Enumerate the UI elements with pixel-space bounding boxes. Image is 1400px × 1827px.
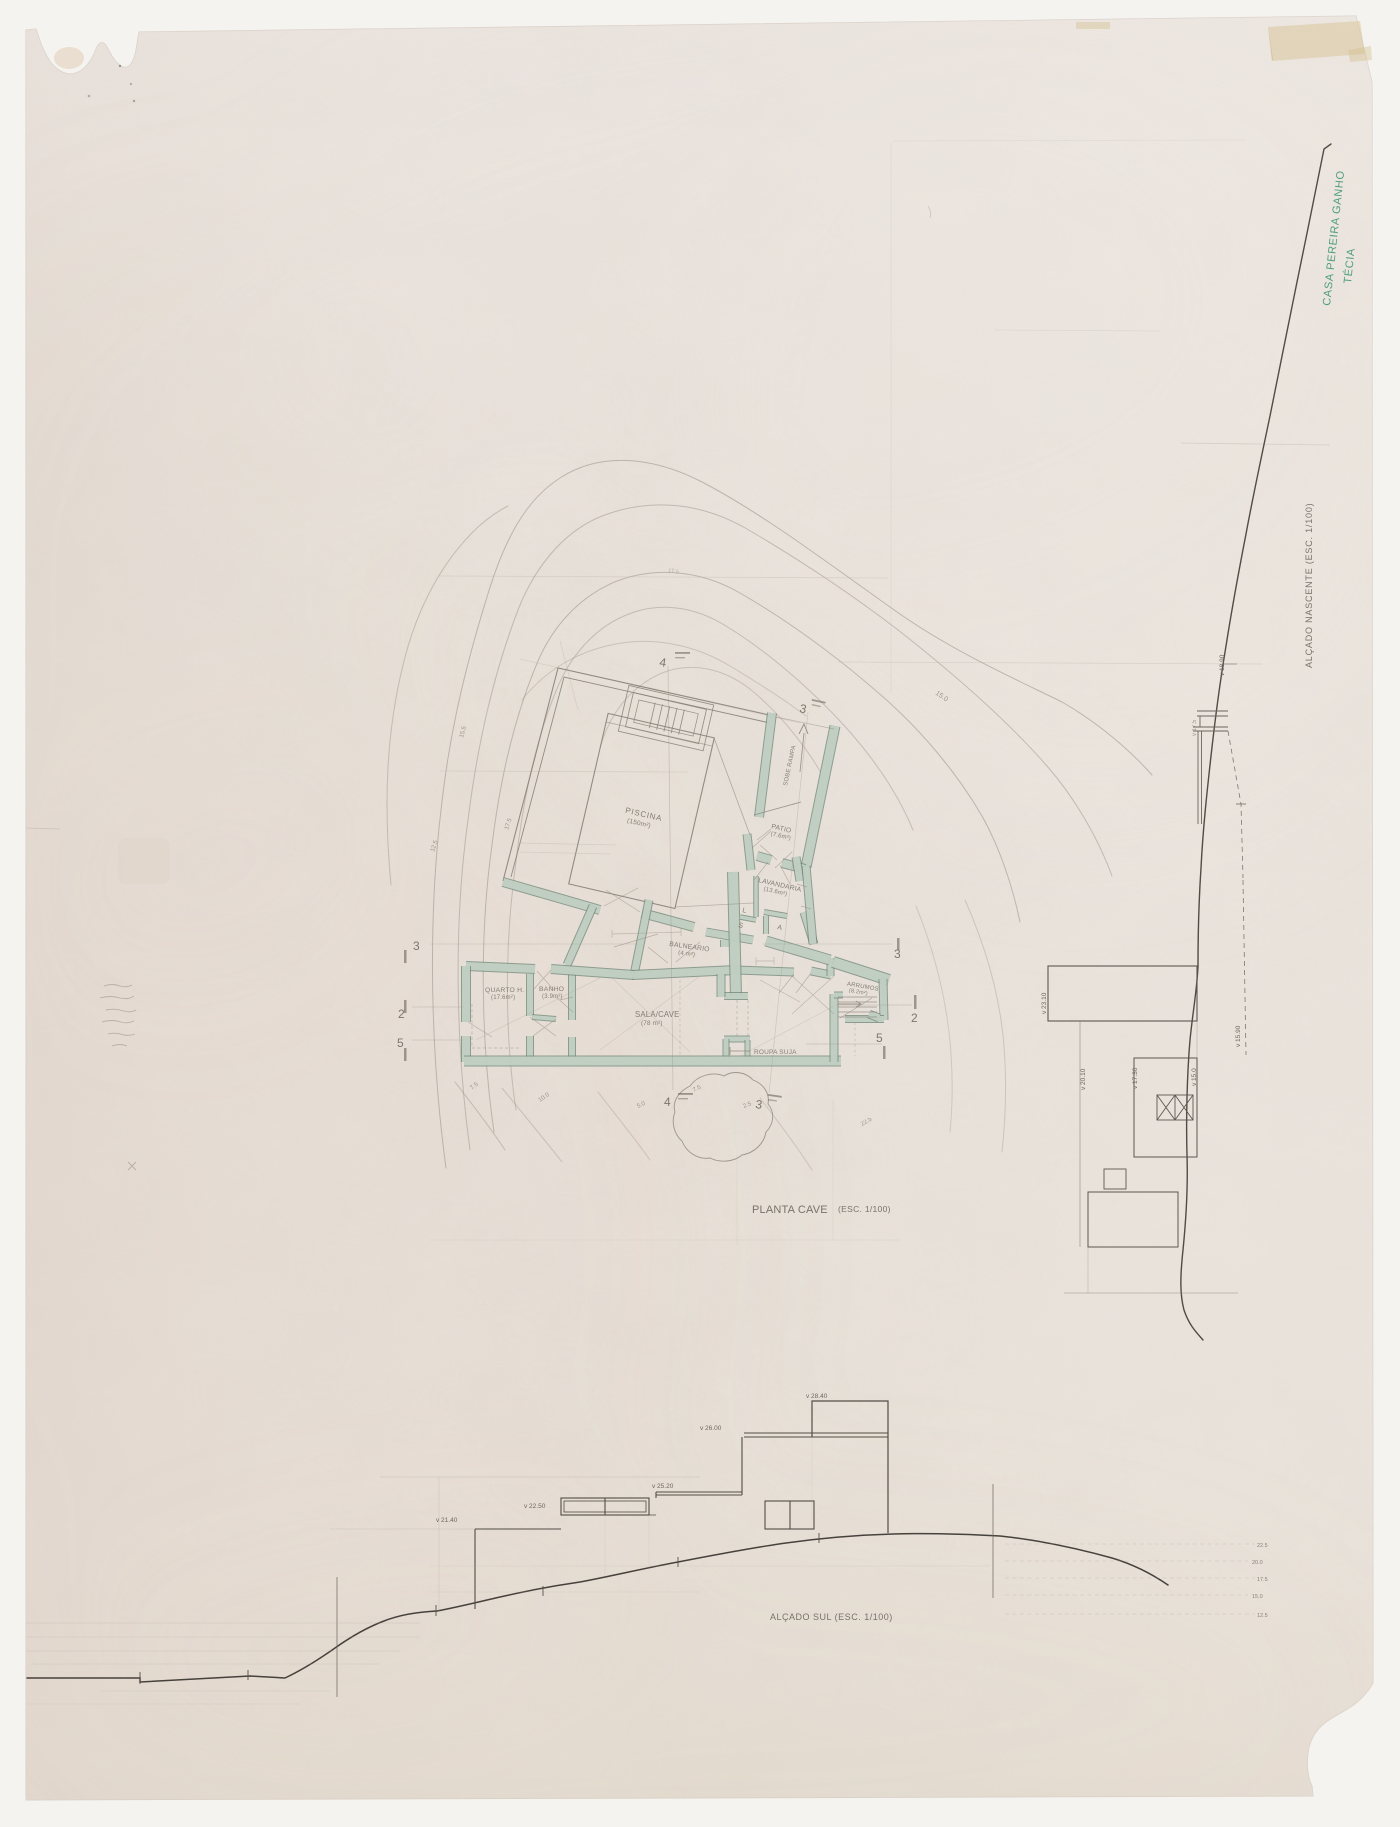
svg-text:v 22.50: v 22.50 xyxy=(524,1503,546,1510)
svg-text:v 17.5: v 17.5 xyxy=(1192,719,1198,736)
svg-text:4: 4 xyxy=(664,1095,671,1109)
svg-text:v 18.90: v 18.90 xyxy=(1219,654,1226,676)
svg-text:17.5: 17.5 xyxy=(1257,1577,1268,1583)
svg-text:v 25.20: v 25.20 xyxy=(652,1483,674,1490)
svg-text:15.0: 15.0 xyxy=(1252,1594,1263,1600)
svg-text:v 28.40: v 28.40 xyxy=(806,1393,828,1400)
svg-text:ALÇADO NASCENTE (ESC. 1/100): ALÇADO NASCENTE (ESC. 1/100) xyxy=(1304,503,1314,668)
svg-text:20.0: 20.0 xyxy=(1252,1560,1263,1566)
svg-text:v 15.90: v 15.90 xyxy=(1235,1025,1242,1047)
svg-text:v 17.30: v 17.30 xyxy=(1132,1067,1139,1089)
svg-text:PLANTA CAVE: PLANTA CAVE xyxy=(752,1204,828,1216)
svg-text:ROUPA SUJA: ROUPA SUJA xyxy=(754,1049,797,1056)
svg-text:2: 2 xyxy=(911,1011,918,1025)
svg-text:(ESC. 1/100): (ESC. 1/100) xyxy=(838,1204,891,1214)
svg-text:5: 5 xyxy=(876,1031,883,1045)
svg-text:BANHO: BANHO xyxy=(539,986,564,993)
svg-text:(3.9m²): (3.9m²) xyxy=(542,994,563,1000)
svg-text:(17.6m²): (17.6m²) xyxy=(491,995,515,1001)
svg-text:3: 3 xyxy=(413,939,420,953)
svg-text:2: 2 xyxy=(398,1007,405,1021)
svg-text:v 23.10: v 23.10 xyxy=(1041,992,1048,1014)
svg-text:22.5: 22.5 xyxy=(1257,1543,1268,1549)
svg-text:QUARTO H.: QUARTO H. xyxy=(485,987,524,994)
svg-text:12.5: 12.5 xyxy=(1257,1613,1268,1619)
svg-text:v 21.40: v 21.40 xyxy=(436,1517,458,1524)
svg-text:(78 m²): (78 m²) xyxy=(641,1020,663,1027)
svg-text:SALA/CAVE: SALA/CAVE xyxy=(635,1010,680,1019)
svg-text:ALÇADO SUL (ESC. 1/100): ALÇADO SUL (ESC. 1/100) xyxy=(770,1612,893,1622)
svg-text:v 20.10: v 20.10 xyxy=(1080,1068,1087,1090)
svg-text:5: 5 xyxy=(397,1036,404,1050)
svg-text:v 15.0: v 15.0 xyxy=(1191,1068,1198,1086)
svg-text:v 26.00: v 26.00 xyxy=(700,1425,722,1432)
